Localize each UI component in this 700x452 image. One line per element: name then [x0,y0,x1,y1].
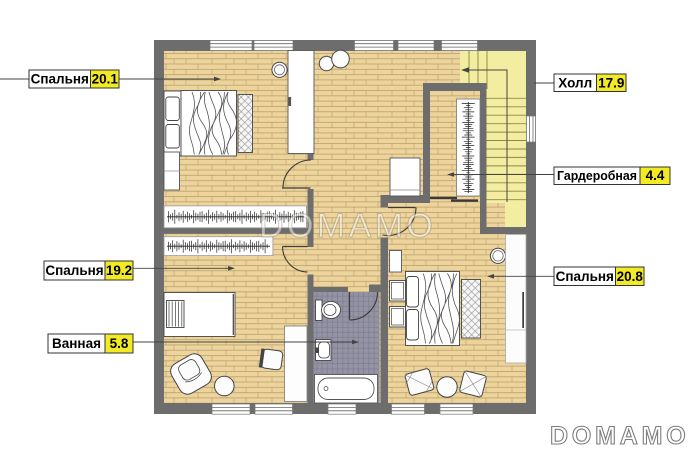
svg-text:Ванная: Ванная [52,336,101,351]
svg-text:17.9: 17.9 [598,75,624,90]
svg-text:DOMAMO: DOMAMO [550,422,689,450]
svg-text:Спальня: Спальня [556,269,614,284]
svg-text:DOMAMO: DOMAMO [259,207,436,245]
svg-text:4.4: 4.4 [646,168,665,183]
svg-text:20.1: 20.1 [92,72,119,87]
svg-text:5.8: 5.8 [110,336,129,351]
svg-text:Спальня: Спальня [31,72,89,87]
svg-text:Холл: Холл [558,75,592,90]
svg-text:19.2: 19.2 [106,263,132,278]
svg-text:Гардеробная: Гардеробная [557,169,637,183]
svg-text:Спальня: Спальня [45,263,103,278]
svg-text:20.8: 20.8 [617,269,644,284]
